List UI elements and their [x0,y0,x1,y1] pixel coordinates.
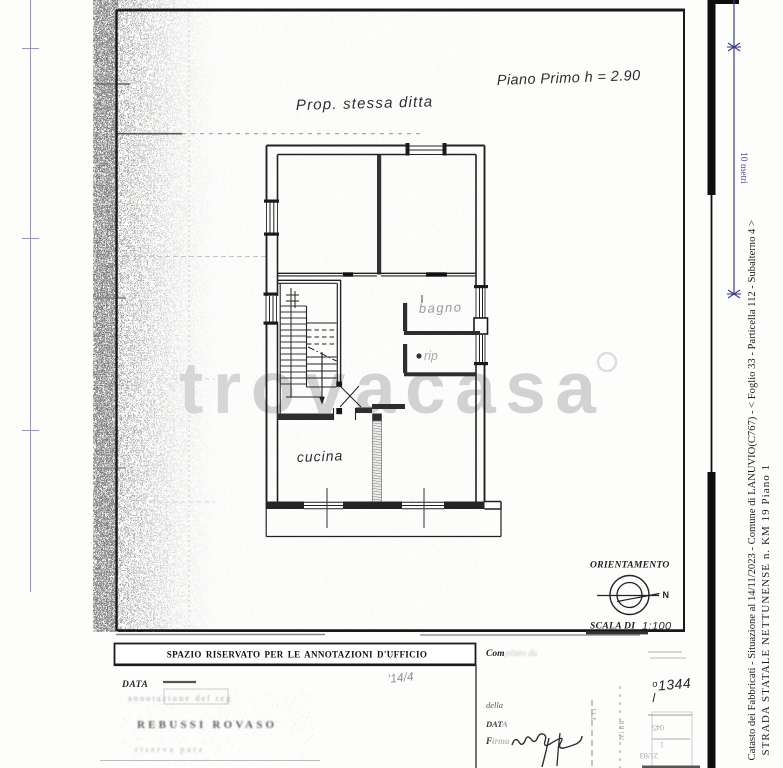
svg-text:trovacasa: trovacasa [179,348,605,429]
svg-text:STRADA STATALE NETTUNENSE n. K: STRADA STATALE NETTUNENSE n. KM 19 Piano… [760,464,772,756]
svg-text:045: 045 [652,723,664,732]
svg-text:della: della [486,700,503,710]
svg-text:DATA: DATA [121,680,148,690]
svg-text:Firma: Firma [485,736,510,746]
svg-text:annotazione del reg: annotazione del reg [128,693,233,703]
svg-text:N: N [663,590,670,600]
svg-text:REBUSSI ROVASO: REBUSSI ROVASO [137,719,277,731]
svg-text:o1344: o1344 [652,675,692,694]
svg-text:’14/4: ’14/4 [387,669,415,686]
svg-text:riserva parz: riserva parz [135,744,205,754]
svg-text:rip: rip [424,349,438,363]
svg-text:cucina: cucina [297,447,344,465]
svg-text:Com: Com [486,649,504,659]
svg-text:Catasto dei Fabbricati - Situa: Catasto dei Fabbricati - Situazione al 1… [747,220,758,760]
svg-text:ORIENTAMENTO: ORIENTAMENTO [590,560,670,571]
svg-text:F i l: F i l [590,709,598,720]
svg-text:N i n 8: N i n 8 [618,720,626,740]
svg-text:1: 1 [660,740,664,749]
svg-text:bagno: bagno [419,299,463,316]
svg-text:SPAZIO RISERVATO PER LE ANNOTA: SPAZIO RISERVATO PER LE ANNOTAZIONI D'UF… [167,650,427,660]
svg-text:1:100: 1:100 [642,621,672,633]
svg-text:Prop. stessa ditta: Prop. stessa ditta [296,93,434,114]
svg-text:DATA: DATA [485,719,508,729]
svg-text:Piano Primo h = 2.90: Piano Primo h = 2.90 [497,68,641,89]
svg-text:SCALA DI: SCALA DI [590,621,635,632]
svg-text:10 metri: 10 metri [738,152,748,184]
svg-text:21/03: 21/03 [640,751,658,760]
